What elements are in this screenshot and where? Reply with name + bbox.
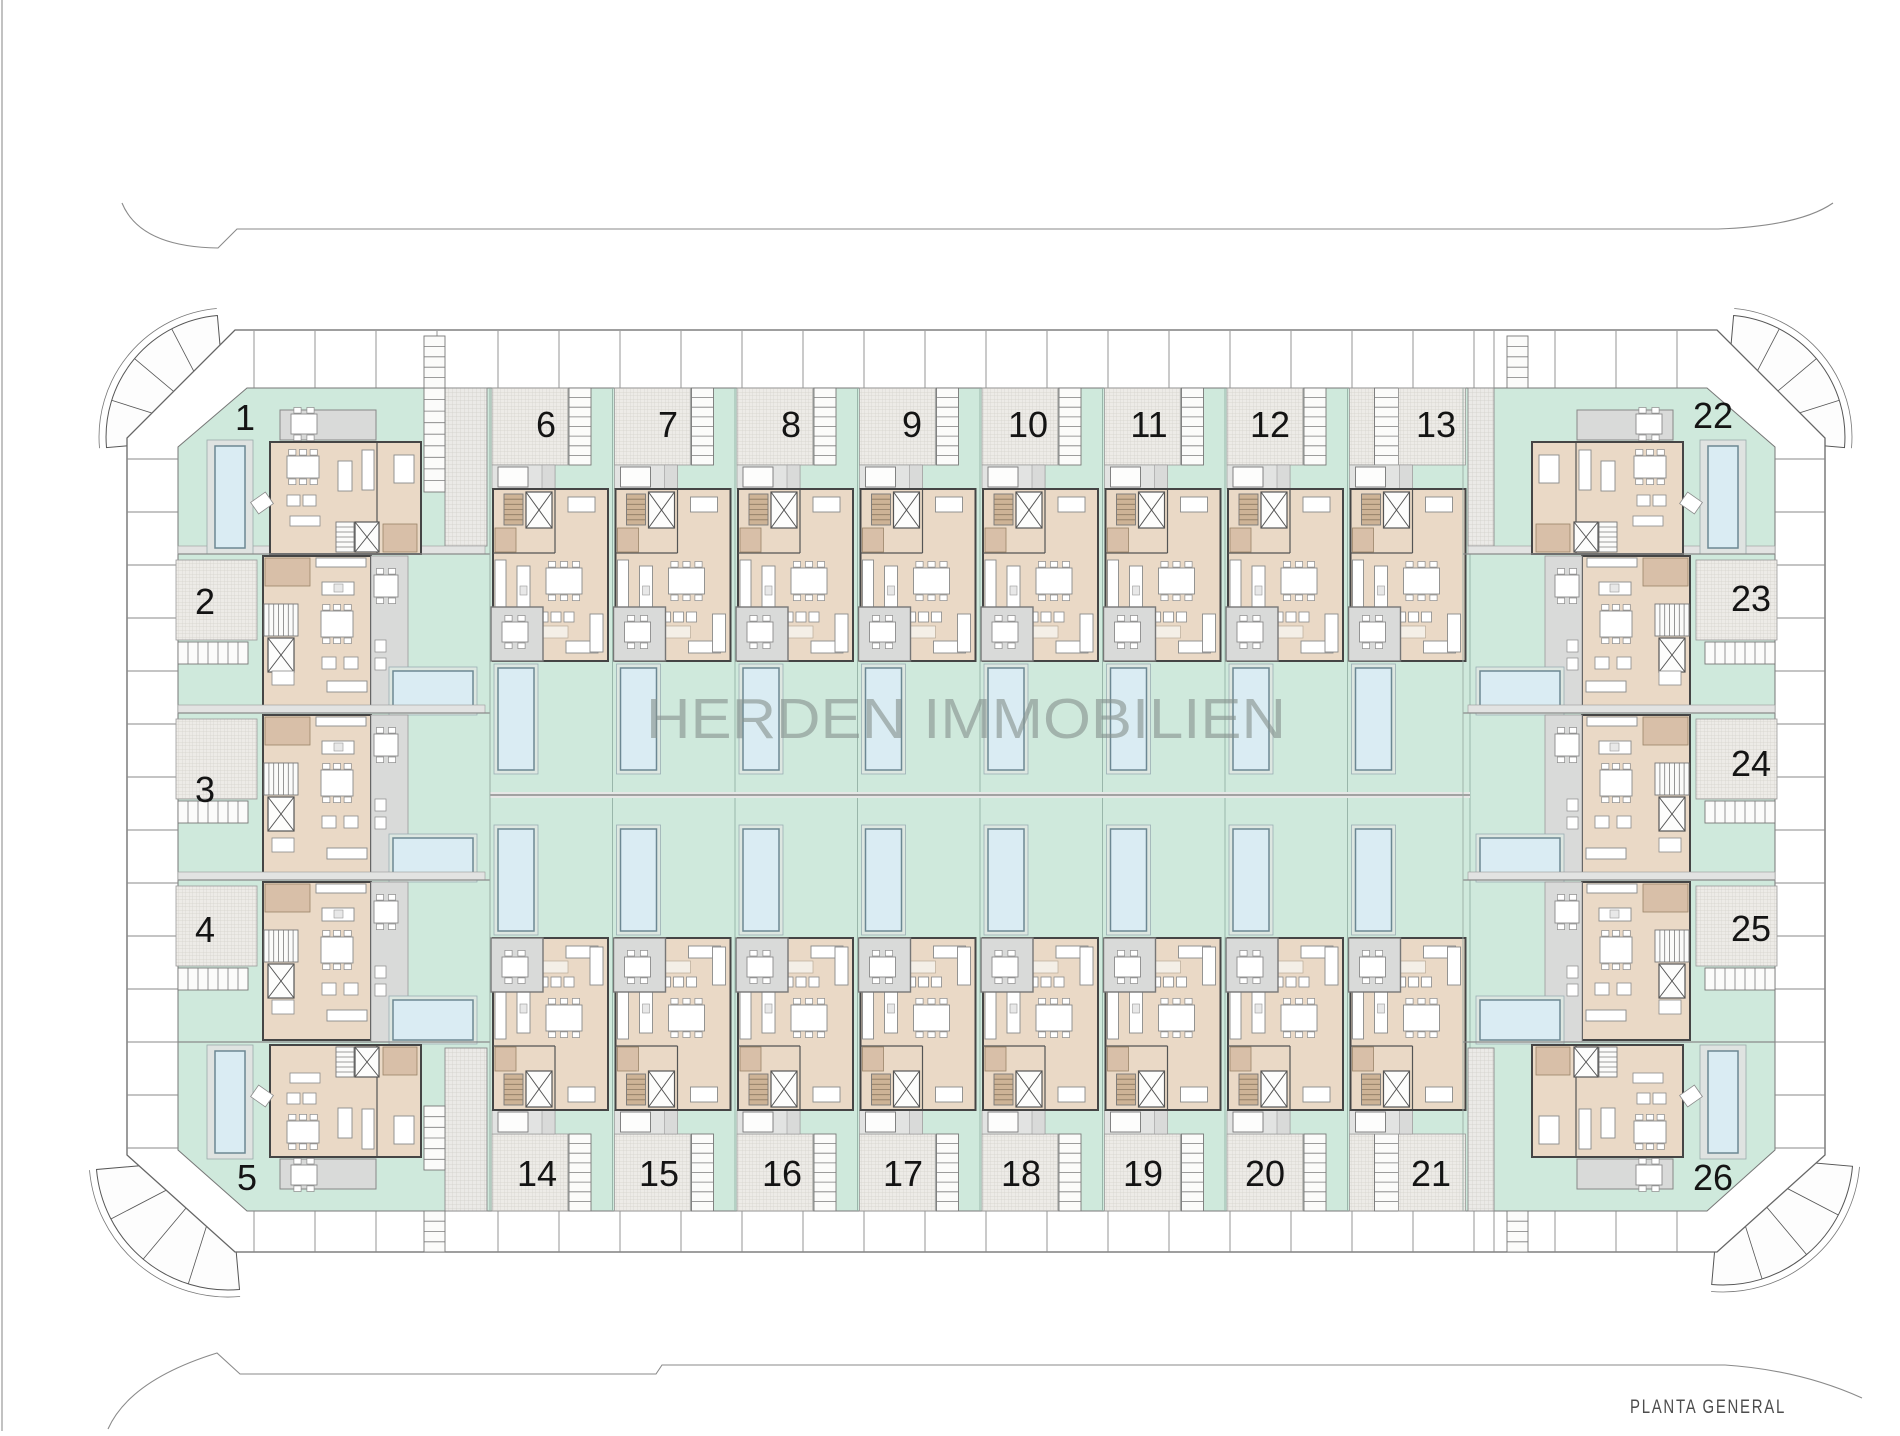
svg-text:1: 1 [235, 397, 255, 438]
svg-text:3: 3 [195, 769, 215, 810]
svg-text:11: 11 [1130, 404, 1167, 445]
svg-text:18: 18 [1001, 1153, 1041, 1194]
svg-text:24: 24 [1731, 743, 1771, 784]
svg-text:23: 23 [1731, 578, 1771, 619]
svg-text:15: 15 [639, 1153, 679, 1194]
svg-text:5: 5 [237, 1157, 257, 1198]
svg-text:13: 13 [1416, 404, 1456, 445]
svg-text:10: 10 [1008, 404, 1048, 445]
svg-text:9: 9 [902, 404, 922, 445]
svg-text:25: 25 [1731, 908, 1771, 949]
svg-text:22: 22 [1693, 395, 1733, 436]
svg-text:17: 17 [883, 1153, 923, 1194]
svg-text:2: 2 [195, 581, 215, 622]
svg-text:14: 14 [517, 1153, 557, 1194]
svg-text:PLANTA GENERAL: PLANTA GENERAL [1630, 1397, 1786, 1418]
svg-text:19: 19 [1123, 1153, 1163, 1194]
svg-text:21: 21 [1411, 1153, 1451, 1194]
svg-text:12: 12 [1250, 404, 1290, 445]
svg-text:16: 16 [762, 1153, 802, 1194]
svg-text:8: 8 [781, 404, 801, 445]
svg-text:4: 4 [195, 909, 215, 950]
svg-text:20: 20 [1245, 1153, 1285, 1194]
svg-text:26: 26 [1693, 1157, 1733, 1198]
svg-text:7: 7 [658, 404, 678, 445]
svg-text:HERDEN IMMOBILIEN: HERDEN IMMOBILIEN [646, 687, 1286, 751]
svg-text:6: 6 [536, 404, 556, 445]
